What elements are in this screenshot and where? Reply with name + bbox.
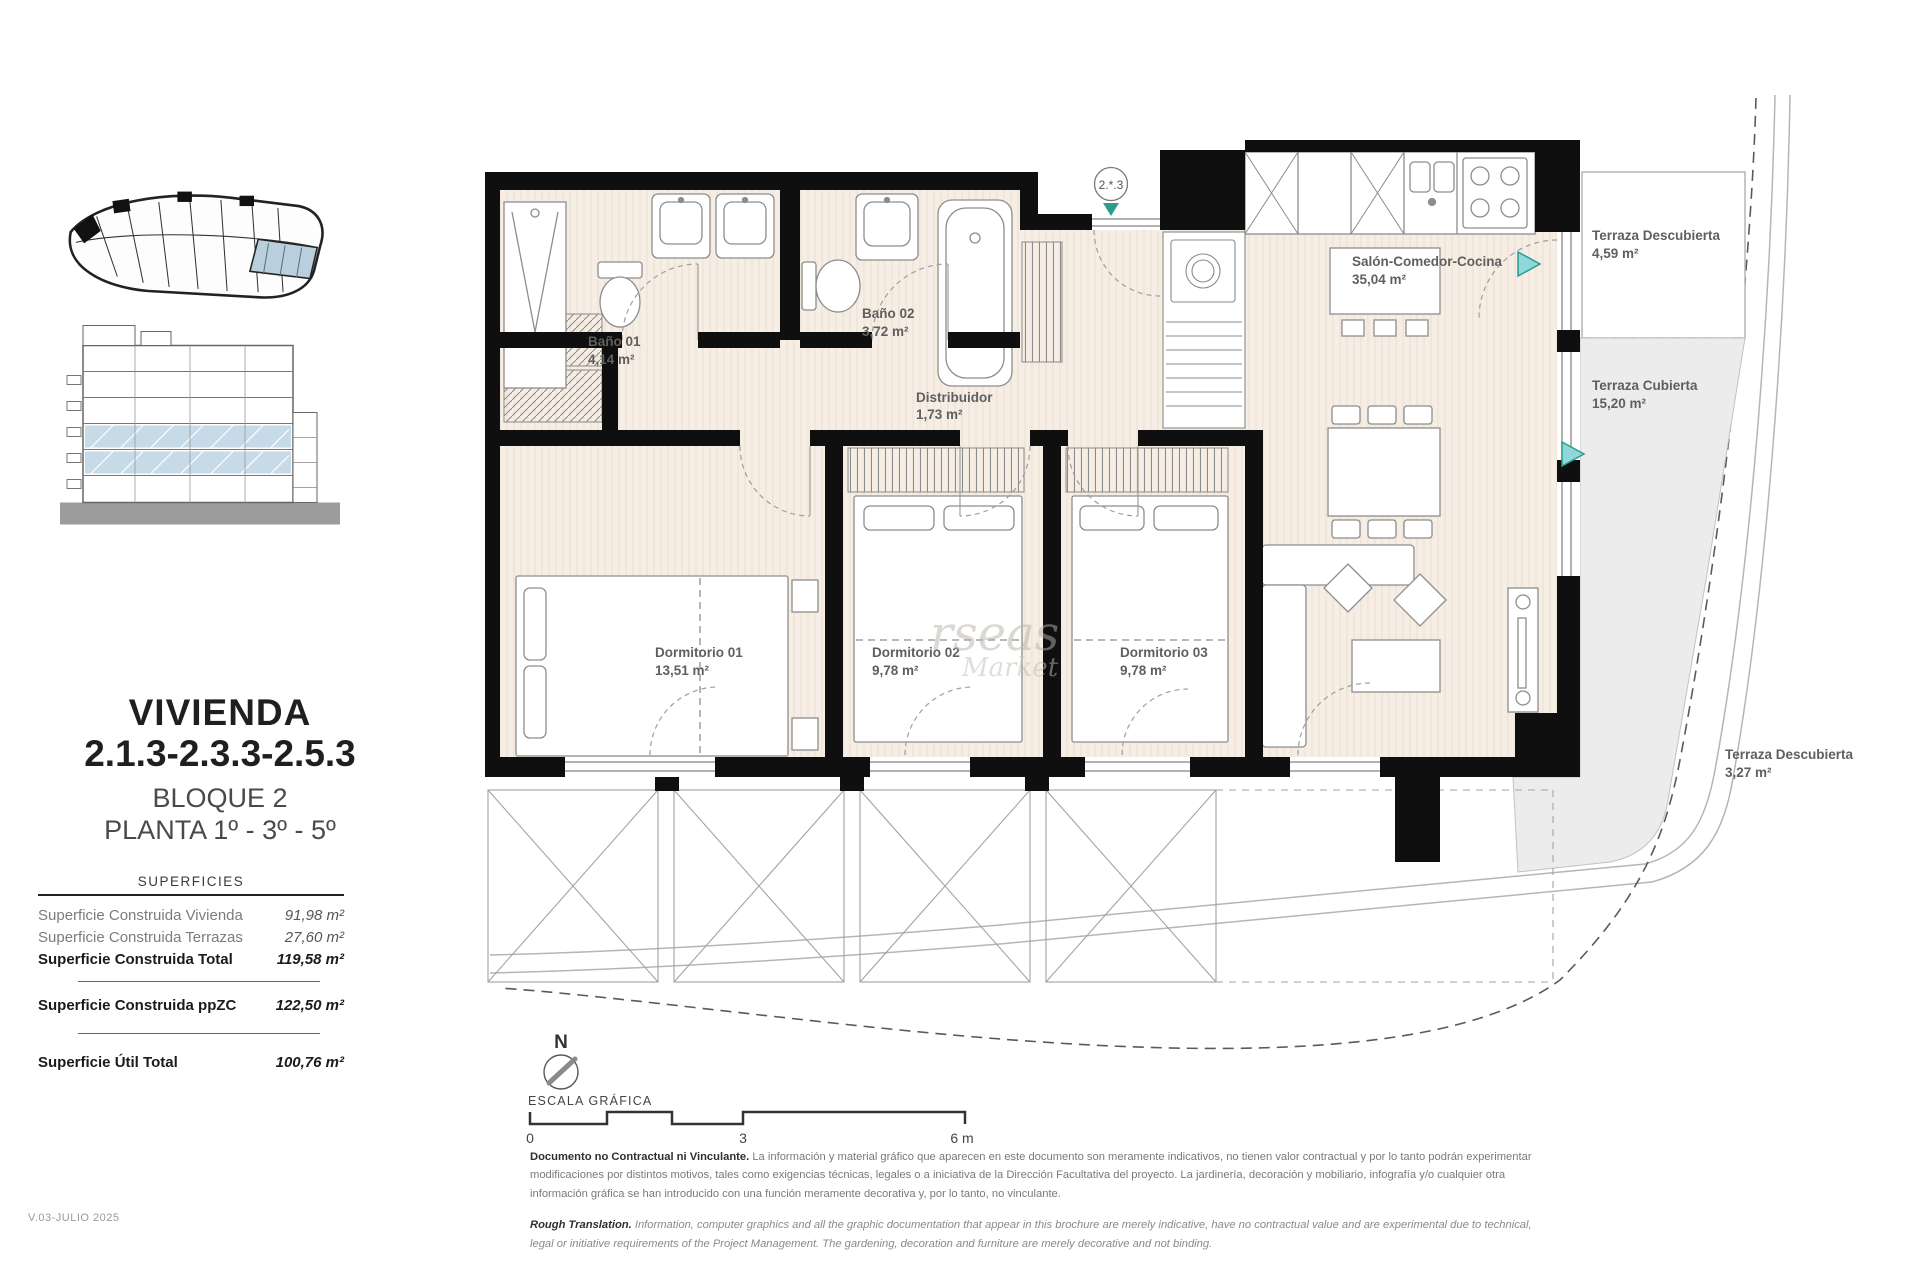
disclaimer-en-body: Information, computer graphics and all t… [530, 1219, 1532, 1249]
legal-disclaimer: Documento no Contractual ni Vinculante. … [530, 1148, 1535, 1253]
shower [504, 202, 566, 388]
sink [856, 194, 918, 260]
block-label: BLOQUE 2 [30, 782, 410, 814]
tv-unit [1508, 588, 1538, 712]
washing-machine [1171, 240, 1235, 302]
surface-label: Superficie Útil Total [38, 1054, 178, 1071]
room-area-terraza1: 4,59 m² [1592, 246, 1639, 261]
surface-label: Superficie Construida Total [38, 951, 233, 968]
room-label-terraza1: Terraza Descubierta [1592, 228, 1721, 243]
surface-value: 100,76 m² [276, 1054, 344, 1071]
scale-tick-6: 6 m [950, 1130, 973, 1146]
room-area-dorm3: 9,78 m² [1120, 663, 1167, 678]
room-area-dorm2: 9,78 m² [872, 663, 919, 678]
table-row: Superficie Construida ppZC 122,50 m² [38, 994, 344, 1016]
scale-bar: ESCALA GRÁFICA 0 3 6 m [526, 1093, 974, 1146]
sink [652, 194, 710, 258]
sink [716, 194, 774, 258]
floor-label: PLANTA 1º - 3º - 5º [30, 814, 410, 846]
room-area-dorm1: 13,51 m² [655, 663, 710, 678]
room-area-distribuidor: 1,73 m² [916, 407, 963, 422]
scale-tick-3: 3 [739, 1130, 747, 1146]
disclaimer-es: Documento no Contractual ni Vinculante. … [530, 1148, 1535, 1203]
scale-title: ESCALA GRÁFICA [528, 1093, 652, 1108]
room-label-bano02: Baño 02 [862, 306, 915, 321]
unit-marker-label: 2.*.3 [1099, 178, 1124, 192]
utility-closet [1163, 232, 1245, 428]
scale-tick-0: 0 [526, 1130, 534, 1146]
disclaimer-en: Rough Translation. Information, computer… [530, 1216, 1535, 1253]
kitchen-counter [1245, 152, 1535, 234]
version-label: V.03-JULIO 2025 [28, 1212, 119, 1224]
disclaimer-es-lead: Documento no Contractual ni Vinculante. [530, 1151, 749, 1163]
page-title: VIVIENDA [30, 692, 410, 733]
divider [78, 981, 320, 982]
ground-bar [60, 503, 340, 525]
unit-numbers: 2.1.3-2.3.3-2.5.3 [30, 733, 410, 774]
room-label-dorm3: Dormitorio 03 [1120, 645, 1208, 660]
table-row: Superficie Útil Total 100,76 m² [38, 1051, 344, 1073]
room-area-terraza2: 15,20 m² [1592, 396, 1647, 411]
north-label: N [554, 1032, 568, 1053]
surface-label: Superficie Construida ppZC [38, 997, 236, 1014]
building-elevation [55, 315, 345, 540]
structure-bays [488, 790, 1553, 982]
dining-table [1328, 428, 1440, 516]
surface-value: 119,58 m² [277, 951, 344, 968]
divider [78, 1033, 320, 1034]
room-area-salon: 35,04 m² [1352, 272, 1407, 287]
toilet [802, 262, 816, 310]
north-arrow: N [544, 1032, 578, 1089]
kitchen-sink [1410, 162, 1430, 192]
table-row: Superficie Construida Total 119,58 m² [38, 948, 344, 970]
coffee-table [1352, 640, 1440, 692]
room-label-terraza2: Terraza Cubierta [1592, 378, 1698, 393]
room-label-terraza3: Terraza Descubierta [1725, 747, 1854, 762]
disclaimer-en-lead: Rough Translation. [530, 1219, 632, 1231]
bathtub [938, 200, 1012, 386]
table-row: Superficie Construida Vivienda 91,98 m² [38, 904, 344, 926]
room-label-salon: Salón-Comedor-Cocina [1352, 254, 1503, 269]
unit-title-block: VIVIENDA 2.1.3-2.3.3-2.5.3 BLOQUE 2 PLAN… [30, 692, 410, 847]
surfaces-table: SUPERFICIES Superficie Construida Vivien… [38, 874, 344, 1073]
room-label-distribuidor: Distribuidor [916, 390, 993, 405]
room-label-dorm1: Dormitorio 01 [655, 645, 743, 660]
surface-value: 91,98 m² [285, 907, 344, 924]
table-row: Superficie Construida Terrazas 27,60 m² [38, 926, 344, 948]
site-key-plan [55, 175, 335, 320]
room-label-bano01: Baño 01 [588, 334, 641, 349]
watermark-line2: Market [961, 653, 1059, 683]
room-area-bano02: 3,72 m² [862, 324, 909, 339]
surfaces-header: SUPERFICIES [38, 874, 344, 896]
brochure-page: 2.*.3 Baño 01 4,14 m² Baño 02 3,72 m² Di… [0, 0, 1920, 1280]
room-area-bano01: 4,14 m² [588, 352, 635, 367]
bed-dorm3 [1072, 496, 1228, 742]
room-area-terraza3: 3,27 m² [1725, 765, 1772, 780]
surface-value: 122,50 m² [276, 997, 344, 1014]
toilet [598, 262, 642, 278]
surface-label: Superficie Construida Vivienda [38, 907, 243, 924]
surface-label: Superficie Construida Terrazas [38, 929, 243, 946]
surface-value: 27,60 m² [285, 929, 344, 946]
